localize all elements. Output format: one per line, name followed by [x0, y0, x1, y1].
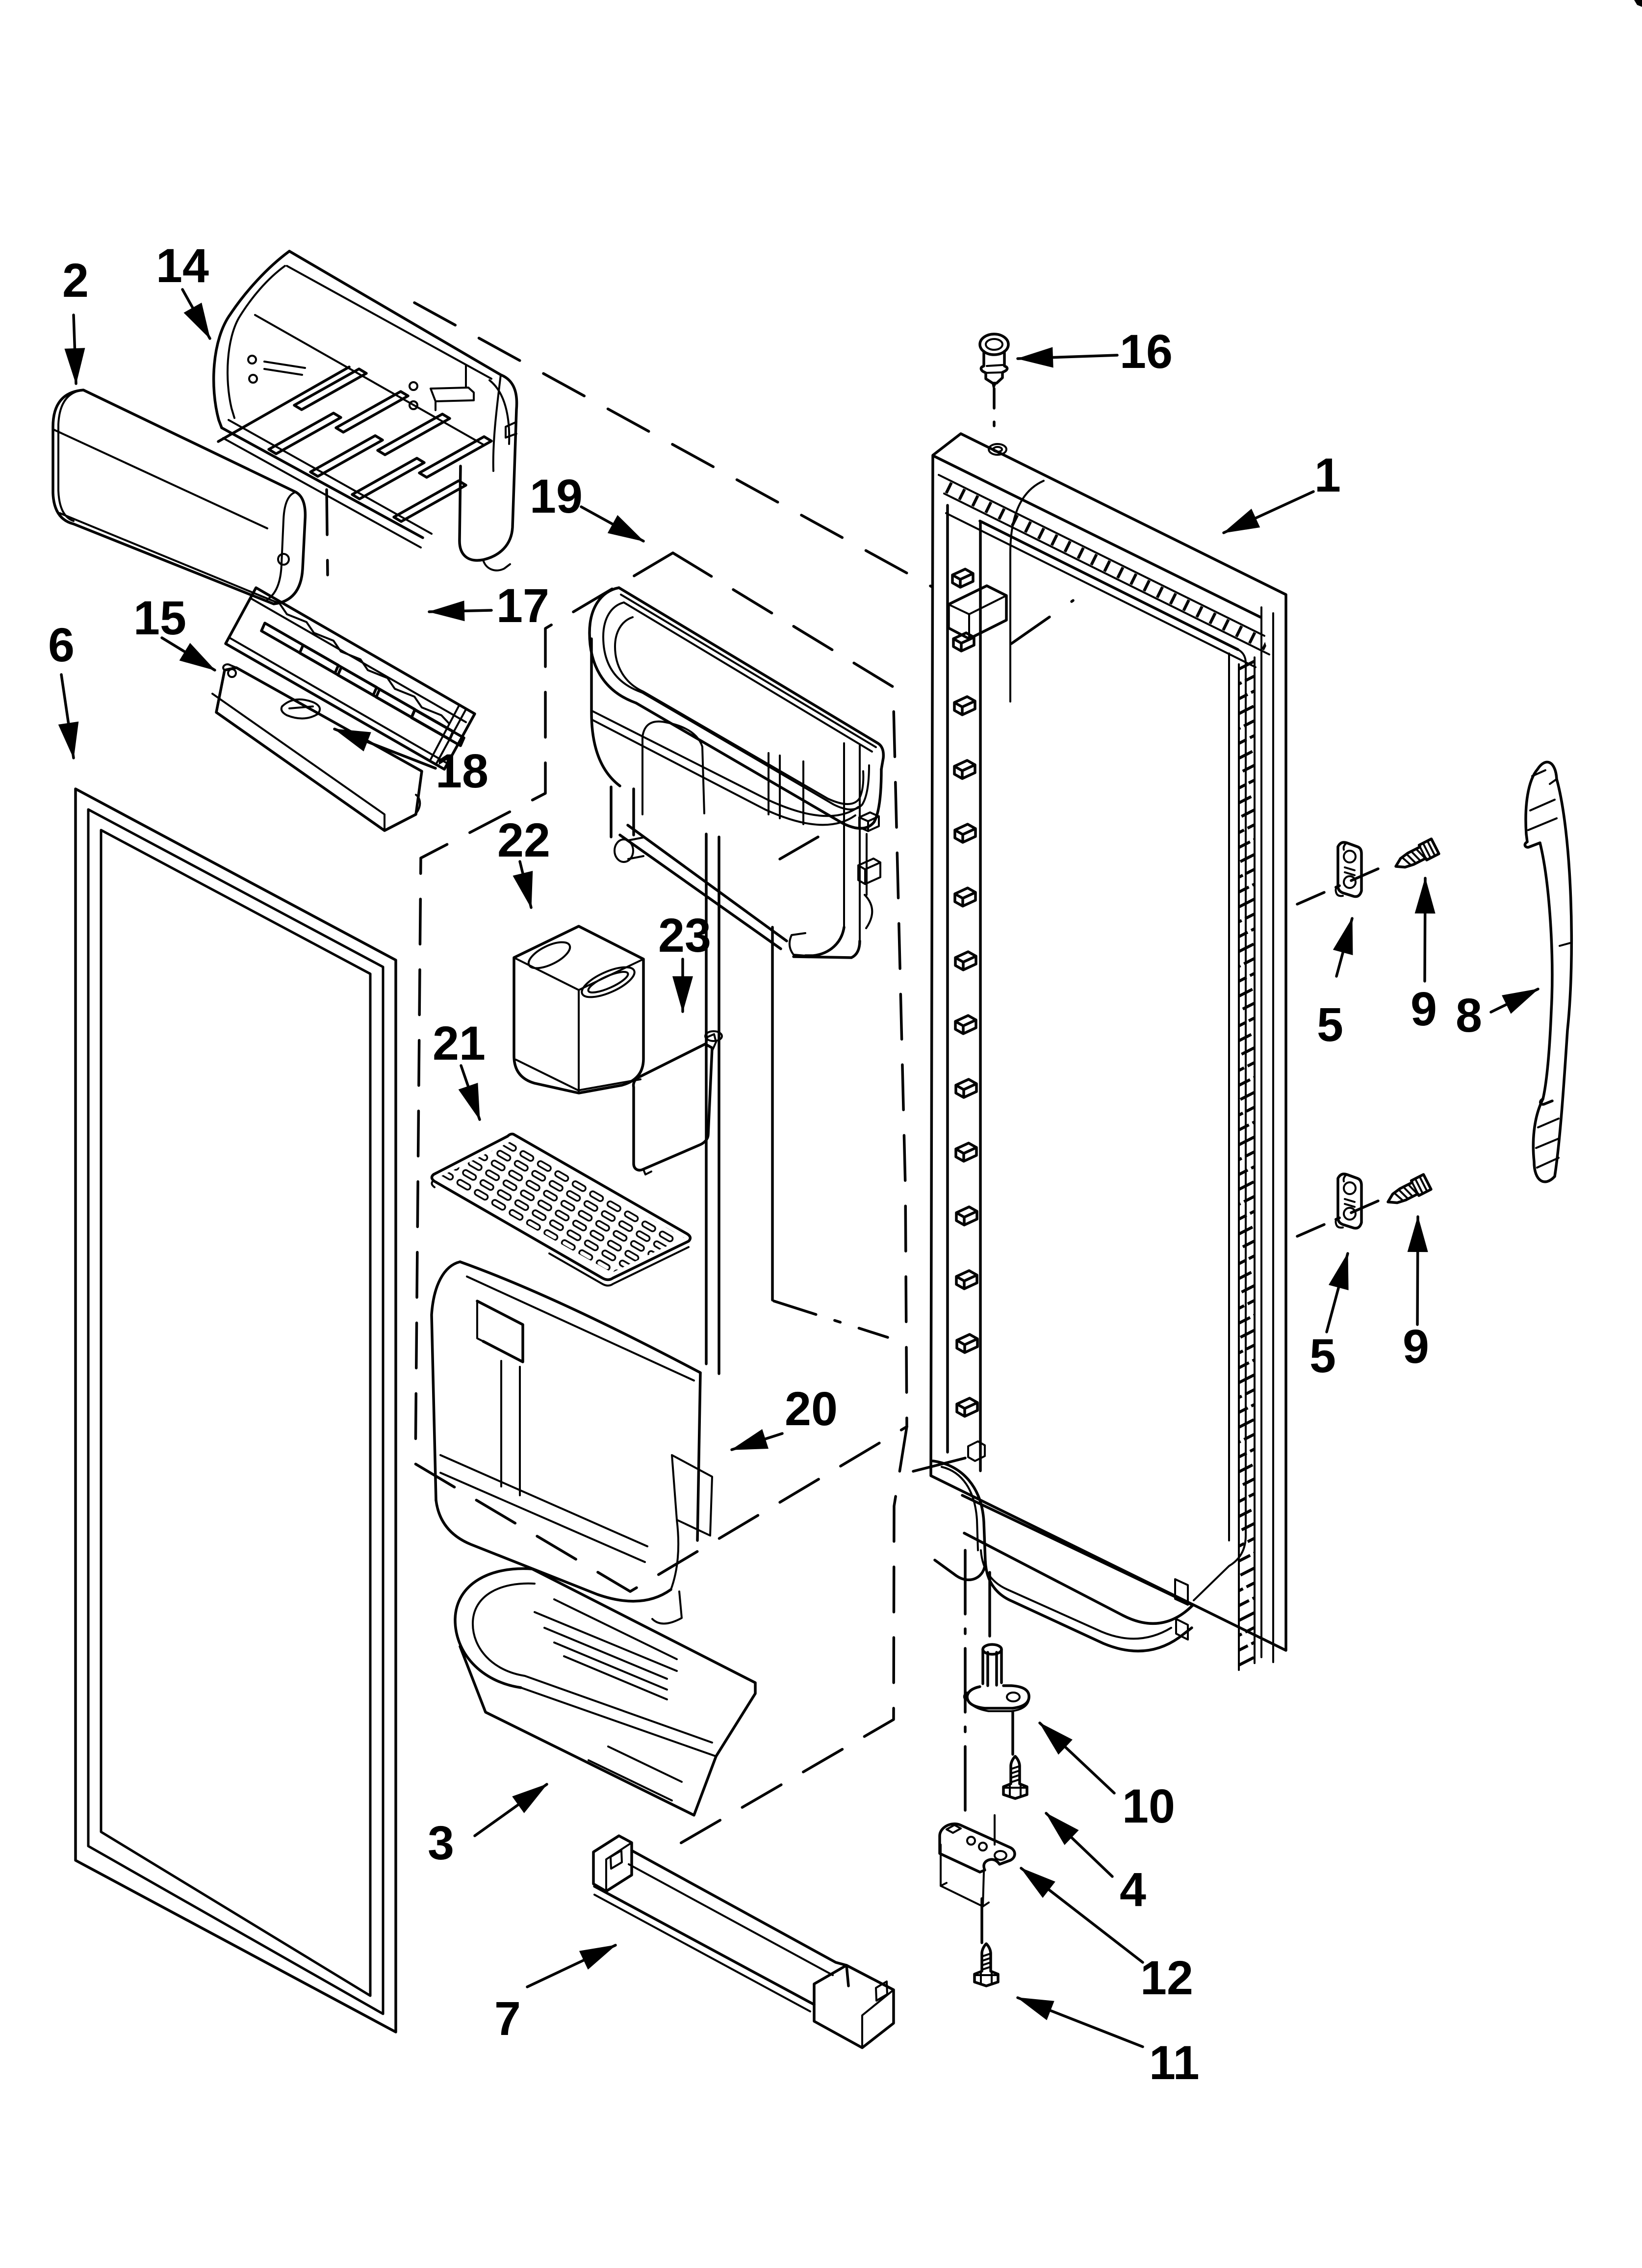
svg-text:15: 15 [133, 591, 186, 645]
svg-text:16: 16 [1120, 325, 1173, 378]
svg-text:14: 14 [156, 239, 209, 292]
svg-text:20: 20 [785, 1382, 838, 1435]
svg-text:3: 3 [428, 1816, 454, 1870]
svg-text:7: 7 [494, 1992, 521, 2045]
svg-text:8: 8 [1456, 989, 1482, 1042]
svg-text:4: 4 [1120, 1863, 1146, 1916]
svg-text:9: 9 [1411, 982, 1437, 1036]
svg-text:22: 22 [497, 813, 550, 867]
svg-text:23: 23 [658, 909, 711, 962]
svg-text:5: 5 [1317, 998, 1343, 1051]
svg-text:2: 2 [62, 254, 89, 307]
svg-text:5: 5 [1309, 1329, 1336, 1382]
svg-text:12: 12 [1140, 1951, 1193, 2005]
svg-text:9: 9 [1403, 1320, 1429, 1373]
svg-text:19: 19 [530, 469, 583, 523]
svg-text:10: 10 [1122, 1779, 1175, 1833]
svg-text:21: 21 [433, 1017, 486, 1070]
svg-text:1: 1 [1314, 448, 1341, 502]
svg-text:11: 11 [1149, 2036, 1200, 2089]
svg-text:17: 17 [496, 579, 549, 632]
svg-text:6: 6 [48, 618, 75, 672]
